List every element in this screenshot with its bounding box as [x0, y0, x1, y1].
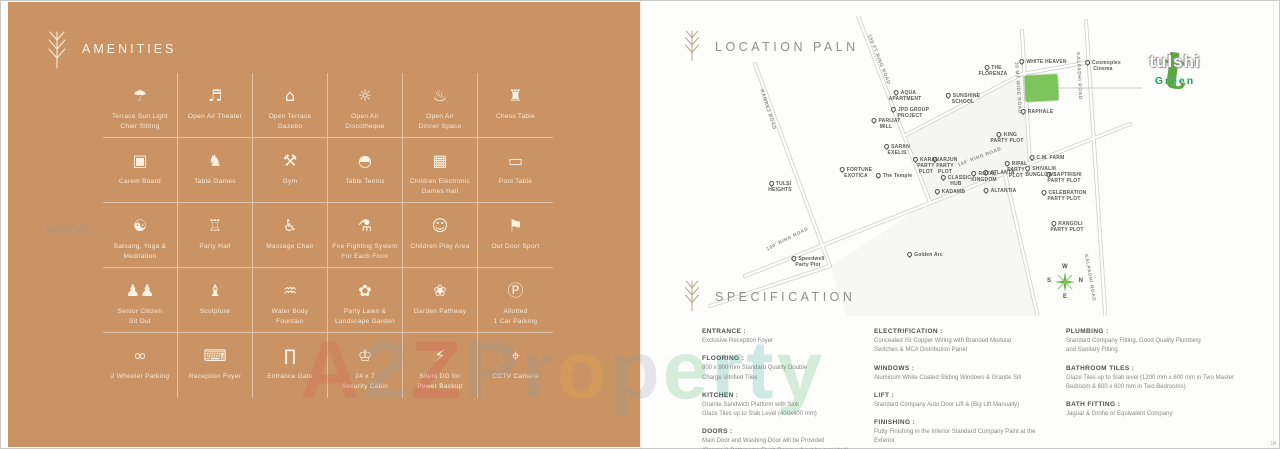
- gazebo-icon: ⌂: [285, 84, 295, 108]
- amenity-label: Water Body Fountain: [272, 307, 309, 327]
- spec-item-title: LIFT :: [874, 392, 1052, 399]
- compass-left: S: [1047, 278, 1051, 284]
- car-parking-icon: Ⓟ: [507, 279, 523, 303]
- map-poi: AQUA APARTMENT: [889, 90, 922, 102]
- map-poi: C.M. FARM: [1030, 155, 1065, 161]
- map-poi: Cosmoplex Cinema: [1085, 60, 1121, 72]
- amenity-cell: ▭Pool Table: [478, 138, 553, 203]
- compass-top: W: [1062, 264, 1068, 270]
- amenity-cell: ▣Carem Board: [103, 138, 178, 203]
- amenity-cell: ⌂Open Terrace Gazebo: [253, 73, 328, 138]
- spec-item: ELECTRIFICATION :Concealed ISI Copper Wi…: [874, 328, 1052, 356]
- amenity-label: Pool Table: [499, 177, 532, 187]
- gym-icon: ⚒: [283, 149, 297, 173]
- map-poi: ALTANTIA: [984, 188, 1017, 194]
- map-poi: KING PARTY PLOT: [990, 132, 1023, 144]
- amenities-panel: AMENITIES ☂Terrace Sun Light Chair Sitti…: [8, 2, 640, 447]
- yoga-meditation-icon: ☯: [133, 214, 147, 238]
- map-poi: SAPTRISHI PARTY PLOT: [1046, 172, 1081, 184]
- amenity-cell: ⌨Reception Foyer: [178, 333, 253, 398]
- spec-item-title: BATHROOM TILES :: [1066, 365, 1254, 372]
- spec-item-title: FLOORING :: [702, 355, 860, 362]
- fountain-icon: ♒: [283, 279, 297, 303]
- amenity-label: CCTV Camera: [493, 372, 539, 382]
- map-poi: CELEBRATION PARTY PLOT: [1042, 190, 1087, 202]
- spec-item: KITCHEN :Granite Sandwich Platform with …: [702, 392, 860, 420]
- amenity-label: Sculpture: [200, 307, 230, 317]
- spec-item-title: DOORS :: [702, 428, 860, 435]
- discotheque-icon: ☼: [358, 84, 372, 108]
- entrance-gate-icon: ∏: [284, 344, 296, 368]
- page-fold-divider: [640, 0, 642, 449]
- amenity-label: Open Terrace Gazebo: [269, 112, 312, 132]
- amenity-label: Silent DG for Power Backup: [417, 372, 463, 392]
- location-map: KAMREJ ROAD150 FT RING ROADAQUA APARTMEN…: [690, 16, 1272, 316]
- map-poi: SUNSHINE SCHOOL: [946, 93, 980, 105]
- spec-item-body: Granite Sandwich Platform with Sink Glaz…: [702, 401, 860, 420]
- dinner-space-icon: ♨: [433, 84, 447, 108]
- tulshi-green-logo: t tulshi Green: [1133, 52, 1217, 87]
- amenity-label: Party Hall: [199, 242, 230, 252]
- leaf-branch-icon: [683, 276, 701, 314]
- amenity-cell: ♞Table Games: [178, 138, 253, 203]
- map-poi: Speedwell Party Plot: [791, 256, 824, 268]
- spec-item-body: Concealed ISI Copper Wiring with Branded…: [874, 337, 1052, 356]
- amenity-cell: ☯Satsang, Yoga & Meditation: [103, 203, 178, 268]
- spec-item-body: Aluminum White Coated Sliding Windows & …: [874, 374, 1052, 383]
- amenity-label: Garden Pathway: [414, 307, 467, 317]
- amenity-cell: ♝Sculpture: [178, 268, 253, 333]
- amenity-label: Open Air Discotheque: [345, 112, 384, 132]
- amenity-cell: ⚗Fire Fighting System For Each Floor: [328, 203, 403, 268]
- amenity-cell: ❀Garden Pathway: [403, 268, 478, 333]
- amenity-cell: ⓅAllotted 1 Car Parking: [478, 268, 553, 333]
- amenity-cell: ☂Terrace Sun Light Chair Sitting: [103, 73, 178, 138]
- massage-chair-icon: ♿: [283, 214, 297, 238]
- spec-item-title: FINISHING :: [874, 419, 1052, 426]
- outdoor-sport-icon: ⚑: [508, 214, 522, 238]
- spec-item-body: Standard Company Auto Door Lift & (Big L…: [874, 401, 1052, 410]
- amenity-cell: ⌖CCTV Camera: [478, 333, 553, 398]
- map-poi: RAPHALE: [1021, 109, 1054, 115]
- senior-citizen-icon: ♟♟: [126, 279, 155, 303]
- spec-item-title: WINDOWS :: [874, 365, 1052, 372]
- table-tennis-icon: ◓: [358, 149, 372, 173]
- terrace-sitting-icon: ☂: [133, 84, 147, 108]
- amenity-label: Terrace Sun Light Chair Sitting: [112, 112, 168, 132]
- spec-item: FINISHING :Putty Finishing in the Interi…: [874, 419, 1052, 447]
- amenity-cell: ◓Table Tennis: [328, 138, 403, 203]
- map-poi: RANGOLI PARTY PLOT: [1050, 221, 1083, 233]
- spec-item-body: Jaguar & Grohe or Equivalent Company: [1066, 410, 1254, 419]
- map-poi: TULSI HEIGHTS: [768, 181, 792, 193]
- spec-item: BATHROOM TILES :Glaze Tiles up to Slab l…: [1066, 365, 1254, 393]
- amenity-label: Children Electronic Games Hall: [410, 177, 470, 197]
- garden-pathway-icon: ❀: [433, 279, 446, 303]
- spec-item: LIFT :Standard Company Auto Door Lift & …: [874, 392, 1052, 410]
- compass-star-icon: [1055, 272, 1075, 292]
- amenity-cell: ⚒Gym: [253, 138, 328, 203]
- map-poi: FORTUNE EXOTICA: [840, 167, 873, 179]
- amenity-cell: ✿Party Lawn & Landscape Garden: [328, 268, 403, 333]
- amenity-cell: ♖Party Hall: [178, 203, 253, 268]
- spec-item-title: ENTRANCE :: [702, 328, 860, 335]
- brochure-page: AMENITIES ☂Terrace Sun Light Chair Sitti…: [0, 0, 1280, 449]
- amenity-cell: ♟♟Senior Citizen Sit Out: [103, 268, 178, 333]
- leaf-branch-icon: [46, 28, 68, 70]
- security-cabin-icon: ♔: [358, 344, 372, 368]
- amenity-label: Party Lawn & Landscape Garden: [335, 307, 395, 327]
- spec-item-title: PLUMBING :: [1066, 328, 1254, 335]
- reception-foyer-icon: ⌨: [203, 344, 226, 368]
- spec-item-body: Standard Company Fitting, Good Quality P…: [1066, 337, 1254, 356]
- amenity-label: Chess Table: [496, 112, 535, 122]
- amenity-label: Gym: [283, 177, 298, 187]
- page-right-edge: [1273, 0, 1274, 449]
- amenity-cell: ☼Open Air Discotheque: [328, 73, 403, 138]
- map-poi: SARAN EXELIS: [884, 144, 910, 156]
- amenity-cell: ♜Chess Table: [478, 73, 553, 138]
- amenity-label: Open Air Theater: [188, 112, 242, 122]
- spec-item-title: KITCHEN :: [702, 392, 860, 399]
- amenity-cell: ∏Entrance Gate: [253, 333, 328, 398]
- amenity-label: Open Air Dinner Space: [419, 112, 462, 132]
- amenity-cell: ⚡Silent DG for Power Backup: [403, 333, 478, 398]
- pool-table-icon: ▭: [508, 149, 523, 173]
- spec-item: DOORS :Main Door and Washing Door will b…: [702, 428, 860, 449]
- amenity-cell: ♔24 x 7 Security Cabin: [328, 333, 403, 398]
- specification-title: SPECIFICATION: [715, 290, 855, 304]
- amenities-title: AMENITIES: [82, 42, 176, 56]
- amenity-cell: ♒Water Body Fountain: [253, 268, 328, 333]
- amenity-label: Massage Chair: [266, 242, 314, 252]
- amenity-cell: ☺Children Play Area: [403, 203, 478, 268]
- amenities-header: AMENITIES: [46, 28, 176, 70]
- spec-item-body: Putty Finishing in the Interior Standard…: [874, 428, 1052, 447]
- spec-item-body: Exclusive Reception Foyer: [702, 337, 860, 346]
- amenity-label: Table Tennis: [345, 177, 385, 187]
- specification-header: SPECIFICATION: [683, 276, 855, 314]
- specification-columns: ENTRANCE :Exclusive Reception FoyerFLOOR…: [702, 328, 1268, 449]
- map-poi: PARIJAT MILL: [871, 118, 900, 130]
- amenity-label: Table Games: [194, 177, 236, 187]
- map-poi: Golden Arc: [907, 252, 943, 258]
- page-number: 14: [1270, 441, 1276, 447]
- spec-item: WINDOWS :Aluminum White Coated Sliding W…: [874, 365, 1052, 383]
- spec-item-body: 800 x 800 mm Standard Quality Double Cha…: [702, 364, 860, 383]
- spec-item: ENTRANCE :Exclusive Reception Foyer: [702, 328, 860, 346]
- spec-item-body: Glaze Tiles up to Slab level (1200 mm x …: [1066, 374, 1254, 393]
- map-poi: ARJUN PARTY PLOT: [932, 157, 957, 175]
- map-poi: WHITE HEAVEN: [1019, 59, 1066, 65]
- map-poi: RIPAL PARTY PLOT: [1005, 161, 1028, 179]
- spec-item: FLOORING :800 x 800 mm Standard Quality …: [702, 355, 860, 383]
- amenity-label: Carem Board: [119, 177, 161, 187]
- amenity-cell: ♿Massage Chair: [253, 203, 328, 268]
- amenity-label: Reception Foyer: [189, 372, 241, 382]
- site-block: [1024, 74, 1058, 102]
- children-play-icon: ☺: [432, 214, 449, 238]
- amenity-label: Satsang, Yoga & Meditation: [114, 242, 167, 262]
- amenity-label: Senior Citizen Sit Out: [118, 307, 163, 327]
- chess-table-icon: ♜: [508, 84, 522, 108]
- watermark-www: www.: [46, 220, 95, 238]
- compass: W S N E: [1045, 262, 1085, 302]
- spec-column: ELECTRIFICATION :Concealed ISI Copper Wi…: [874, 328, 1066, 449]
- amenities-grid: ☂Terrace Sun Light Chair Sitting♬Open Ai…: [103, 73, 553, 398]
- spec-column: ENTRANCE :Exclusive Reception FoyerFLOOR…: [702, 328, 874, 449]
- logo-name: tulshi: [1133, 52, 1217, 72]
- map-poi: CLASSIC HUB: [941, 175, 971, 187]
- amenity-cell: ∞2 Wheeler Parking: [103, 333, 178, 398]
- amenity-label: 24 x 7 Security Cabin: [342, 372, 388, 392]
- map-poi: The Temple: [876, 173, 912, 179]
- carrom-board-icon: ▣: [132, 149, 147, 173]
- amenity-label: Fire Fighting System For Each Floor: [332, 242, 398, 262]
- amenity-cell: ♨Open Air Dinner Space: [403, 73, 478, 138]
- map-poi: KADAMB: [935, 189, 965, 195]
- two-wheeler-icon: ∞: [133, 344, 146, 368]
- cctv-camera-icon: ⌖: [511, 344, 520, 368]
- logo-subtitle: Green: [1133, 75, 1217, 87]
- party-hall-icon: ♖: [208, 214, 222, 238]
- open-air-theater-icon: ♬: [208, 84, 222, 108]
- fire-system-icon: ⚗: [358, 214, 372, 238]
- table-games-icon: ♞: [208, 149, 222, 173]
- amenity-label: Entrance Gate: [267, 372, 313, 382]
- map-poi: THE FLORENZA: [979, 65, 1008, 77]
- amenity-cell: ⚑Out Door Sport: [478, 203, 553, 268]
- compass-bottom: E: [1063, 294, 1067, 300]
- sculpture-icon: ♝: [208, 279, 222, 303]
- spec-item: PLUMBING :Standard Company Fitting, Good…: [1066, 328, 1254, 356]
- spec-item-title: BATH FITTING :: [1066, 401, 1254, 408]
- dg-backup-icon: ⚡: [434, 344, 445, 368]
- compass-right: N: [1079, 278, 1083, 284]
- spec-column: PLUMBING :Standard Company Fitting, Good…: [1066, 328, 1268, 449]
- amenity-cell: ♬Open Air Theater: [178, 73, 253, 138]
- lawn-garden-icon: ✿: [358, 279, 371, 303]
- amenity-label: 2 Wheeler Parking: [111, 372, 170, 382]
- spec-item-body: Main Door and Washing Door will be Provi…: [702, 437, 860, 449]
- amenity-cell: ▦Children Electronic Games Hall: [403, 138, 478, 203]
- amenity-label: Children Play Area: [410, 242, 469, 252]
- amenity-label: Allotted 1 Car Parking: [494, 307, 538, 327]
- spec-item-title: ELECTRIFICATION :: [874, 328, 1052, 335]
- games-hall-icon: ▦: [432, 149, 447, 173]
- spec-item: BATH FITTING :Jaguar & Grohe or Equivale…: [1066, 401, 1254, 419]
- amenity-label: Out Door Sport: [492, 242, 540, 252]
